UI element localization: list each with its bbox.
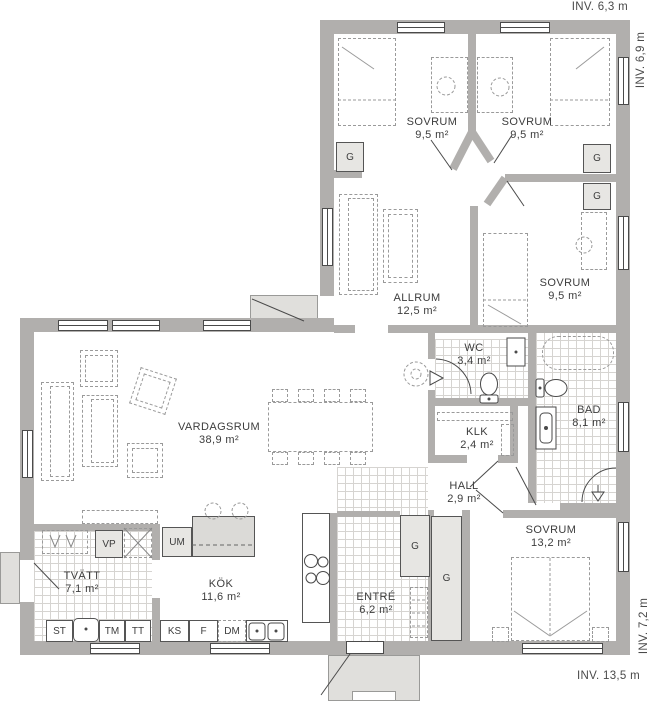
- sofa-seat: [50, 386, 70, 477]
- kitchen-sink-counter: [246, 620, 288, 642]
- wall: [470, 206, 478, 325]
- nightstand: [492, 627, 509, 642]
- wall: [468, 34, 476, 132]
- sofa-seat: [348, 198, 374, 291]
- dim-right-lower: INV. 7,2 m: [638, 596, 650, 656]
- room-label-wc: WC 3,4 m²: [457, 342, 491, 368]
- dim-bottom: INV. 13,5 m: [577, 670, 640, 682]
- desk: [581, 212, 607, 270]
- wall: [462, 510, 470, 641]
- sideboard: [82, 510, 158, 524]
- window: [618, 402, 629, 452]
- coat-rack: [410, 587, 428, 638]
- dining-chair: [350, 452, 366, 465]
- window: [322, 208, 333, 266]
- heat-pump-vp: VP: [95, 530, 123, 558]
- wall: [152, 524, 160, 560]
- dining-chair: [298, 452, 314, 465]
- door-opening: [320, 296, 334, 318]
- bed: [550, 38, 610, 126]
- room-name: SOVRUM: [526, 524, 577, 537]
- room-area: 9,5 m²: [502, 129, 553, 142]
- room-name: BAD: [572, 404, 606, 417]
- dryer-tt: TT: [125, 620, 151, 642]
- door-opening: [20, 560, 34, 602]
- dishwasher-dm: DM: [218, 620, 246, 642]
- dining-chair: [324, 389, 340, 402]
- window: [522, 643, 603, 654]
- dining-chair: [324, 452, 340, 465]
- window: [618, 57, 629, 105]
- room-name: VARDAGSRUM: [178, 421, 260, 434]
- room-name: SOVRUM: [540, 277, 591, 290]
- room-area: 11,6 m²: [201, 591, 240, 604]
- window: [58, 320, 108, 331]
- dining-chair: [298, 389, 314, 402]
- room-name: KÖK: [201, 578, 240, 591]
- room-name: HALL: [447, 480, 481, 493]
- wall: [320, 20, 630, 34]
- room-area: 2,4 m²: [460, 439, 494, 452]
- room-name: SOVRUM: [407, 116, 458, 129]
- wall: [152, 598, 160, 641]
- bathtub: [542, 336, 614, 370]
- entry-step: [352, 691, 396, 701]
- window: [203, 320, 251, 331]
- angled-walls: [453, 132, 505, 204]
- wall: [337, 511, 400, 517]
- room-label-tvatt: TVÄTT 7,1 m²: [64, 570, 101, 596]
- sofa: [41, 382, 74, 481]
- window: [618, 522, 629, 572]
- dining-chair: [350, 389, 366, 402]
- window: [618, 216, 629, 270]
- room-name: WC: [457, 342, 491, 355]
- wardrobe-g: G: [583, 144, 611, 173]
- coffee-table: [383, 209, 418, 283]
- chair-seat: [85, 355, 113, 382]
- fixture-label: G: [443, 573, 451, 584]
- room-area: 38,9 m²: [178, 434, 260, 447]
- fixture-label: G: [411, 541, 419, 552]
- room-area: 13,2 m²: [526, 537, 577, 550]
- room-area: 8,1 m²: [572, 417, 606, 430]
- desk: [431, 57, 468, 113]
- window: [210, 643, 270, 654]
- dining-table: [268, 402, 373, 452]
- room-name: TVÄTT: [64, 570, 101, 583]
- room-label-allrum: ALLRUM 12,5 m²: [393, 292, 440, 318]
- wardrobe-g: G: [431, 516, 462, 641]
- room-name: ALLRUM: [393, 292, 440, 305]
- room-label-sovrum-4: SOVRUM 13,2 m²: [526, 524, 577, 550]
- front-door: [346, 641, 384, 654]
- wall: [503, 510, 616, 518]
- freezer-f: F: [189, 620, 218, 642]
- room-area: 3,4 m²: [457, 355, 491, 368]
- kitchen-island: [192, 516, 255, 557]
- dim-top: INV. 6,3 m: [572, 1, 628, 13]
- fixture-label: G: [593, 153, 601, 164]
- fixture-label: ST: [53, 626, 66, 637]
- room-label-kok: KÖK 11,6 m²: [201, 578, 240, 604]
- room-label-bad: BAD 8,1 m²: [572, 404, 606, 430]
- wall: [20, 332, 34, 655]
- room-area: 12,5 m²: [393, 305, 440, 318]
- drying-rack: [42, 530, 88, 554]
- table-top: [388, 214, 413, 278]
- wall: [334, 325, 355, 333]
- room-area: 6,2 m²: [356, 604, 395, 617]
- room-label-entre: ENTRÉ 6,2 m²: [356, 591, 395, 617]
- armchair: [80, 350, 118, 387]
- dining-chair: [272, 389, 288, 402]
- wardrobe-g: G: [336, 142, 364, 172]
- fixture-label: VP: [102, 539, 115, 550]
- table-top: [132, 448, 158, 473]
- floor-plan: G G G G G VP UM ST TM TT KS F DM: [0, 0, 660, 710]
- room-label-hall: HALL 2,9 m²: [447, 480, 481, 506]
- room-area: 9,5 m²: [407, 129, 458, 142]
- armchair: [129, 367, 177, 415]
- desk: [477, 57, 513, 113]
- fixture-label: TT: [132, 626, 144, 637]
- room-label-klk: KLK 2,4 m²: [460, 426, 494, 452]
- dim-right-upper: INV. 6,9 m: [635, 29, 647, 91]
- fixture-label: F: [200, 626, 206, 637]
- room-name: SOVRUM: [502, 116, 553, 129]
- closet-shelf: [437, 412, 513, 421]
- nightstand: [592, 627, 609, 642]
- window: [112, 320, 160, 331]
- kitchen-counter: [302, 513, 330, 623]
- sofa: [339, 194, 378, 295]
- room-area: 9,5 m²: [540, 290, 591, 303]
- wall: [528, 332, 536, 503]
- window: [22, 430, 33, 478]
- room-label-vardagsrum: VARDAGSRUM 38,9 m²: [178, 421, 260, 447]
- side-table: [127, 443, 163, 478]
- fixture-label: DM: [224, 626, 240, 637]
- window: [90, 643, 140, 654]
- laundry-porch: [0, 552, 20, 604]
- fixture-label: G: [593, 191, 601, 202]
- wardrobe-g: G: [583, 183, 611, 210]
- wall: [505, 174, 616, 182]
- fridge-ks: KS: [160, 620, 189, 642]
- room-name: KLK: [460, 426, 494, 439]
- wardrobe-g: G: [400, 515, 430, 577]
- wall: [330, 513, 337, 641]
- room-label-sovrum-2: SOVRUM 9,5 m²: [502, 116, 553, 142]
- room-area: 2,9 m²: [447, 493, 481, 506]
- window: [500, 22, 550, 33]
- bed: [483, 233, 528, 327]
- wall: [428, 333, 435, 359]
- fixture-label: UM: [169, 537, 185, 548]
- sofa-seat: [91, 399, 114, 463]
- room-label-sovrum-1: SOVRUM 9,5 m²: [407, 116, 458, 142]
- fixture-label: TM: [105, 626, 119, 637]
- wall: [428, 406, 435, 457]
- wall: [428, 455, 467, 463]
- chair-seat: [135, 373, 170, 408]
- fixture-label: G: [346, 152, 354, 163]
- room-area: 7,1 m²: [64, 583, 101, 596]
- wall: [320, 34, 334, 332]
- washing-machine-tm: TM: [99, 620, 125, 642]
- double-bed: [511, 557, 590, 641]
- room-name: ENTRÉ: [356, 591, 395, 604]
- wall: [498, 455, 510, 463]
- room-label-sovrum-3: SOVRUM 9,5 m²: [540, 277, 591, 303]
- bed: [338, 38, 396, 126]
- sofa: [82, 395, 118, 467]
- laundry-sink: [73, 618, 99, 642]
- dining-chair: [272, 452, 288, 465]
- cleaning-cabinet-st: ST: [46, 620, 73, 642]
- window: [397, 22, 445, 33]
- water-heater: [124, 528, 152, 558]
- oven-micro-um: UM: [162, 527, 192, 557]
- fixture-label: KS: [168, 626, 181, 637]
- closet-shelf: [501, 424, 514, 456]
- wall: [428, 398, 532, 406]
